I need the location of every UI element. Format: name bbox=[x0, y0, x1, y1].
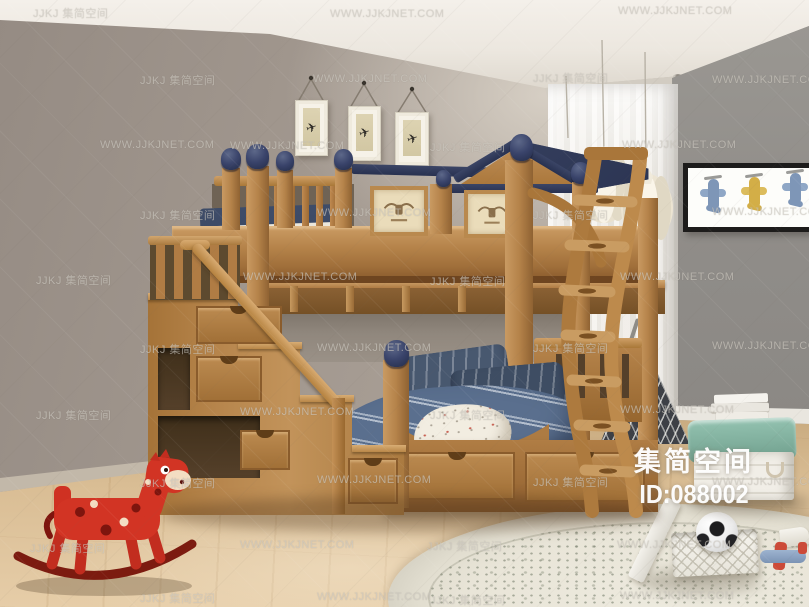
watermark-text: JJKJ 集简空间 bbox=[533, 340, 608, 356]
watermark-text: JJKJ 集简空间 bbox=[430, 592, 505, 607]
watermark-text: JJKJ 集简空间 bbox=[30, 540, 105, 556]
watermark-site-name: 集简空间 bbox=[604, 440, 784, 479]
watermark-text: JJKJ 集简空间 bbox=[36, 407, 111, 423]
watermark-text: WWW.JJKJNET.COM bbox=[620, 271, 734, 283]
watermark-text: WWW.JJKJNET.COM bbox=[100, 139, 214, 151]
watermark-text: JJKJ 集简空间 bbox=[33, 5, 108, 21]
watermark-text: WWW.JJKJNET.COM bbox=[317, 474, 431, 486]
watermark-text: JJKJ 集简空间 bbox=[140, 341, 215, 357]
watermark-text: WWW.JJKJNET.COM bbox=[622, 139, 736, 151]
watermark-text: JJKJ 集简空间 bbox=[533, 474, 608, 490]
watermark-text: JJKJ 集简空间 bbox=[427, 538, 502, 554]
watermark-text: JJKJ 集简空间 bbox=[430, 407, 505, 423]
watermark-text: WWW.JJKJNET.COM bbox=[243, 271, 357, 283]
watermark-text: JJKJ 集简空间 bbox=[430, 139, 505, 155]
watermark-text: WWW.JJKJNET.COM bbox=[620, 590, 734, 602]
watermark-text: WWW.JJKJNET.COM bbox=[240, 406, 354, 418]
watermark-text: WWW.JJKJNET.COM bbox=[712, 206, 809, 218]
watermark-text: WWW.JJKJNET.COM bbox=[240, 539, 354, 551]
watermark-text: JJKJ 集简空间 bbox=[36, 272, 111, 288]
watermark-text: JJKJ 集简空间 bbox=[533, 207, 608, 223]
watermark-text: WWW.JJKJNET.COM bbox=[712, 340, 809, 352]
watermark-text: JJKJ 集简空间 bbox=[430, 273, 505, 289]
bedroom-render: ✈ ✈ ✈ bbox=[0, 0, 809, 607]
watermark-text: WWW.JJKJNET.COM bbox=[620, 404, 734, 416]
watermark-text: WWW.JJKJNET.COM bbox=[330, 8, 444, 20]
watermark-grid: JJKJ 集简空间WWW.JJKJNET.COMWWW.JJKJNET.COMJ… bbox=[0, 0, 809, 607]
watermark-text: WWW.JJKJNET.COM bbox=[618, 5, 732, 17]
watermark-text: WWW.JJKJNET.COM bbox=[317, 207, 431, 219]
site-watermark: 集简空间 ID:088002 bbox=[604, 440, 784, 510]
watermark-text: JJKJ 集简空间 bbox=[140, 72, 215, 88]
watermark-text: JJKJ 集简空间 bbox=[140, 207, 215, 223]
watermark-text: WWW.JJKJNET.COM bbox=[313, 73, 427, 85]
watermark-text: WWW.JJKJNET.COM bbox=[712, 74, 809, 86]
watermark-text: WWW.JJKJNET.COM bbox=[230, 140, 344, 152]
watermark-text: WWW.JJKJNET.COM bbox=[317, 591, 431, 603]
watermark-text: JJKJ 集简空间 bbox=[140, 475, 215, 491]
watermark-item-id: ID:088002 bbox=[613, 479, 775, 510]
watermark-text: JJKJ 集简空间 bbox=[140, 590, 215, 606]
watermark-text: WWW.JJKJNET.COM bbox=[317, 342, 431, 354]
watermark-text: WWW.JJKJNET.COM bbox=[617, 539, 731, 551]
watermark-text: JJKJ 集简空间 bbox=[533, 70, 608, 86]
